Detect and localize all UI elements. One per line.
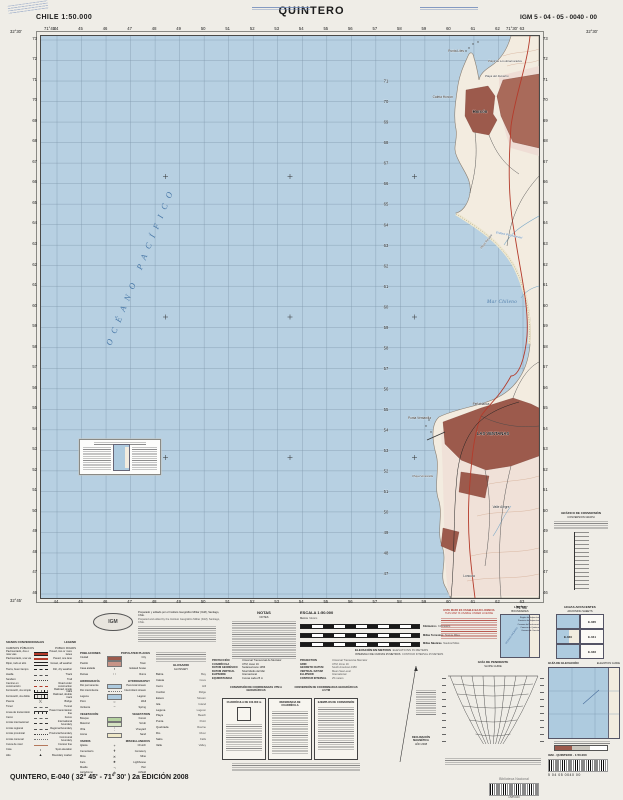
legend-item-en: Forest bbox=[122, 718, 146, 721]
blue-annotation-left bbox=[252, 7, 310, 11]
grid-label-northing-right: 73 bbox=[543, 37, 557, 41]
scale-meters-es: Metros bbox=[300, 617, 308, 620]
grid-label-northing-left: 47 bbox=[24, 570, 37, 574]
glossary-intro-microtext bbox=[156, 652, 206, 662]
adjoining-cell: E-046 bbox=[580, 644, 604, 659]
legend-symbol: ▲ bbox=[33, 754, 48, 758]
legend-item-en: Scrub bbox=[122, 723, 146, 726]
adjoining-cell: E-035 bbox=[580, 614, 604, 629]
slope-guide-notes bbox=[445, 758, 541, 765]
place-label: Punta Ventanilla bbox=[408, 416, 431, 420]
grid-label-northing-left: 68 bbox=[24, 139, 37, 143]
legend-symbol bbox=[33, 652, 48, 656]
legend-title-es: SIGNOS CONVENCIONALES bbox=[6, 640, 44, 644]
legend-item-en: Boundary marker bbox=[48, 755, 72, 758]
elevation-guide: GUÍA DE ELEVACIÓN ELEVATION GUIDE IGM - … bbox=[548, 662, 620, 777]
legend-symbol bbox=[33, 716, 48, 720]
grid-label-easting-bottom: 62 bbox=[492, 600, 502, 604]
depth-ruler bbox=[554, 745, 608, 751]
map-graphic: 7170696867666564636261605958575655545352… bbox=[41, 36, 539, 598]
svg-text:69: 69 bbox=[384, 120, 389, 125]
grid-label-easting-top: 46 bbox=[100, 27, 110, 31]
grid-label-northing-right: 72 bbox=[543, 57, 557, 61]
legend-symbol bbox=[33, 722, 48, 726]
limits-labels: Región de ValparaísoProvincia de Valpara… bbox=[513, 617, 539, 633]
svg-text:71: 71 bbox=[384, 79, 389, 84]
legend-item-es: Huella bbox=[6, 674, 33, 677]
grid-label-easting-top: 57 bbox=[370, 27, 380, 31]
warning-line2: THIS MAP IS USABLE UNDER LICENSE bbox=[440, 612, 498, 615]
grid-label-northing-right: 71 bbox=[543, 78, 557, 82]
inset-left-microtext bbox=[83, 447, 111, 471]
legend-item-en: Power transmission line bbox=[48, 710, 72, 715]
legend-item-en: Mine bbox=[122, 756, 146, 759]
svg-text:64: 64 bbox=[384, 222, 389, 227]
legend-item-es: Pueblo bbox=[80, 663, 107, 666]
svg-text:47: 47 bbox=[384, 571, 389, 576]
legend-item-es: Túnel bbox=[6, 706, 33, 709]
grid-label-easting-bottom: 55 bbox=[321, 600, 331, 604]
grid-label-northing-left: 52 bbox=[24, 468, 37, 472]
legend-item: Pavimentado, dos o más víasPaved, two or… bbox=[6, 651, 76, 656]
grid-label-easting-bottom: 51 bbox=[223, 600, 233, 604]
credits-block: Preparado y editado por el Instituto Geo… bbox=[138, 611, 220, 642]
adjoining-title-en: ADJOINING SHEETS bbox=[549, 610, 611, 613]
sheet-code: IGM 5 - 04 - 05 - 0040 - 00 bbox=[520, 14, 597, 21]
legend-item-es: Río permanente bbox=[80, 685, 107, 688]
declination-year: AÑO 2008 bbox=[404, 743, 438, 746]
grid-label-northing-right: 46 bbox=[543, 591, 557, 595]
grid-label-northing-right: 58 bbox=[543, 345, 557, 349]
legend-item: Hito▲Boundary marker bbox=[6, 753, 76, 758]
legend-item-en: Regional boundary bbox=[48, 728, 72, 731]
conversion-graph-notes bbox=[554, 521, 608, 529]
limits-title-en: BOUNDARIES bbox=[500, 610, 540, 613]
legend-symbol: )( bbox=[33, 700, 48, 704]
conversion-header1: CONVERSIÓN DE COORDENADAS UTM A GEOGRÁFI… bbox=[224, 686, 288, 693]
legend-item-es: Límite regional bbox=[6, 728, 33, 731]
grid-label-northing-right: 56 bbox=[543, 386, 557, 390]
legend-item-en: Spring bbox=[122, 707, 146, 710]
production-microtext bbox=[232, 763, 360, 772]
igm-barcode bbox=[548, 759, 608, 772]
legend-item-es: Cota bbox=[6, 749, 33, 752]
legend-symbol bbox=[107, 733, 122, 737]
conversion-boxes: CUADRÍCULA DE 100.000 mREFERENCIA DE CUA… bbox=[222, 698, 358, 760]
declination-microtext bbox=[416, 690, 436, 716]
warning-microtext bbox=[441, 618, 497, 640]
svg-text:67: 67 bbox=[384, 161, 389, 166]
grid-label-easting-bottom: 47 bbox=[125, 600, 135, 604]
legend-item-en: Dirt, dry weather bbox=[48, 669, 72, 672]
grid-label-northing-right: 50 bbox=[543, 509, 557, 513]
grid-label-northing-right: 70 bbox=[543, 98, 557, 102]
conversion-box-microtext bbox=[272, 711, 308, 755]
grid-label-northing-left: 70 bbox=[24, 98, 37, 102]
grid-label-northing-left: 63 bbox=[24, 242, 37, 246]
legend-item-es: Ferrocarril, vía doble bbox=[6, 696, 33, 699]
grid-label-easting-bottom: 56 bbox=[345, 600, 355, 604]
depth-ruler-labels bbox=[554, 741, 610, 745]
grid-label-northing-right: 66 bbox=[543, 180, 557, 184]
legend-title-en: LEGEND bbox=[64, 640, 76, 644]
legend-symbol: ¬ bbox=[107, 766, 122, 770]
legend-item-en: Lagoon bbox=[122, 696, 146, 699]
svg-text:50: 50 bbox=[384, 510, 389, 515]
legend-symbol bbox=[107, 690, 122, 694]
legend-symbol: ∷ bbox=[107, 673, 122, 677]
adjoining-block: HOJAS ADYACENTES ADJOINING SHEETS E-035E… bbox=[549, 606, 611, 659]
scale-bar bbox=[300, 633, 420, 638]
svg-text:59: 59 bbox=[384, 325, 389, 330]
grid-label-northing-left: 66 bbox=[24, 180, 37, 184]
place-label: Caleta Horcón bbox=[433, 95, 454, 99]
glossary-block: GLOSARIO GLOSSARY BahíaBayCaletaCoveCerr… bbox=[156, 652, 206, 750]
legend-item-es: Ciudad bbox=[80, 657, 107, 660]
place-label: Valle Alegre bbox=[493, 505, 510, 509]
legend-symbol: ✕ bbox=[107, 756, 122, 760]
grid-label-easting-top: 48 bbox=[149, 27, 159, 31]
svg-text:48: 48 bbox=[384, 551, 389, 556]
igm-logo-text: IGM bbox=[108, 619, 117, 625]
notes-microtext bbox=[232, 621, 296, 659]
place-label: Playa del Durazno bbox=[485, 74, 509, 78]
legend-item-en: City bbox=[122, 657, 146, 660]
legend-symbol bbox=[107, 657, 122, 661]
legend-item-es: Bosque bbox=[80, 718, 107, 721]
svg-text:61: 61 bbox=[384, 284, 389, 289]
grid-label-easting-bottom: 57 bbox=[370, 600, 380, 604]
grid-label-northing-right: 64 bbox=[543, 221, 557, 225]
grid-label-northing-left: 62 bbox=[24, 263, 37, 267]
legend-item-es: Río intermitente bbox=[80, 690, 107, 693]
legend-item-en: Vineyard bbox=[122, 729, 146, 732]
svg-text:56: 56 bbox=[384, 386, 389, 391]
grid-label-easting-bottom: 53 bbox=[272, 600, 282, 604]
grid-label-easting-top: 53 bbox=[272, 27, 282, 31]
adjoining-row: E-035 bbox=[556, 614, 604, 629]
grid-label-northing-right: 60 bbox=[543, 304, 557, 308]
grid-label-easting-top: 63 bbox=[517, 27, 527, 31]
igm-barcode-label: IGM - QUINTERO - 1:50.000 bbox=[548, 754, 620, 758]
corner-coord-ne_lon: 71°30' bbox=[506, 27, 518, 31]
conversion-box-microtext bbox=[318, 707, 354, 751]
grid-label-easting-top: 61 bbox=[468, 27, 478, 31]
legend-symbol: ★ bbox=[107, 761, 122, 765]
notes-block: NOTAS NOTES bbox=[232, 611, 296, 659]
svg-text:54: 54 bbox=[384, 427, 389, 432]
legend-item-en: Communal boundary bbox=[48, 737, 72, 742]
elevation-guide-title-en: ELEVATION GUIDE bbox=[597, 662, 620, 666]
conversion-graph: GRÁFICO DE CONVERSIÓN CONVERSION GRAPH bbox=[545, 512, 617, 598]
projection-table: ProyecciónUniversal Transversal de Merca… bbox=[212, 660, 392, 682]
grid-label-northing-right: 49 bbox=[543, 529, 557, 533]
adjoining-row: E-046 bbox=[556, 644, 604, 659]
grid-label-easting-bottom: 61 bbox=[468, 600, 478, 604]
grid-label-easting-bottom: 60 bbox=[443, 600, 453, 604]
legend-symbol: • bbox=[33, 749, 48, 753]
glossary-rows: BahíaBayCaletaCoveCerroHillCordónRidgeEs… bbox=[156, 673, 206, 750]
legend-symbol bbox=[33, 711, 48, 715]
grid-label-northing-right: 51 bbox=[543, 488, 557, 492]
conversion-box-title: EJEMPLOS DE CONVERSIÓN bbox=[317, 701, 355, 704]
svg-text:51: 51 bbox=[384, 489, 389, 494]
limits-block: LÍMITES BOUNDARIES OCÉANO PACÍFICO Regió… bbox=[500, 606, 540, 658]
legend-item-en: Cemetery bbox=[122, 751, 146, 754]
legend-symbol: + bbox=[107, 745, 122, 749]
grid-square-diagram bbox=[237, 707, 251, 721]
grid-label-easting-top: 49 bbox=[174, 27, 184, 31]
svg-text:60: 60 bbox=[384, 304, 389, 309]
legend-symbol bbox=[107, 717, 122, 721]
legend-symbol bbox=[33, 689, 48, 693]
legend-item-es: Muelle bbox=[80, 767, 107, 770]
legend-item-en: Paved, two or more lanes bbox=[48, 651, 72, 656]
glossary-row: ValleValley bbox=[156, 744, 206, 750]
grid-label-easting-bottom: 58 bbox=[394, 600, 404, 604]
svg-text:49: 49 bbox=[384, 530, 389, 535]
grid-label-northing-left: 56 bbox=[24, 386, 37, 390]
legend-col2: POBLACIONESPOPULATED PLACESCiudadCityPue… bbox=[80, 650, 150, 776]
legend-item-es: Pozo bbox=[80, 701, 107, 704]
legend-item-es: Línea de transmisión bbox=[6, 712, 33, 715]
legend-item-en: Pier bbox=[122, 767, 146, 770]
legend-symbol bbox=[33, 662, 48, 666]
notes-title-en: NOTES bbox=[232, 616, 296, 619]
grid-label-easting-bottom: 52 bbox=[247, 600, 257, 604]
grid-label-northing-right: 57 bbox=[543, 365, 557, 369]
declination-title: DECLINACIÓN MAGNÉTICA bbox=[404, 736, 438, 743]
legend-symbol bbox=[33, 695, 48, 699]
legend-symbol bbox=[33, 657, 48, 661]
svg-text:52: 52 bbox=[384, 468, 389, 473]
grid-label-northing-right: 52 bbox=[543, 468, 557, 472]
grid-label-northing-left: 46 bbox=[24, 591, 37, 595]
igm-barcode-digits: 5 04 05 0040 00 bbox=[548, 773, 620, 778]
legend-symbol bbox=[107, 662, 122, 666]
elevation-line1-es: ELEVACIÓN EN METROS bbox=[355, 648, 391, 652]
grid-label-northing-left: 58 bbox=[24, 345, 37, 349]
grid-label-northing-left: 50 bbox=[24, 509, 37, 513]
corner-coord-nw_lat: 32°30' bbox=[10, 30, 22, 34]
grid-label-northing-right: 53 bbox=[543, 447, 557, 451]
grid-label-northing-right: 54 bbox=[543, 427, 557, 431]
corner-coord-se_lon: 71°30' bbox=[516, 606, 528, 610]
grid-label-northing-left: 73 bbox=[24, 37, 37, 41]
legend-item-es: Curva de nivel bbox=[6, 744, 33, 747]
glossary-title-en: GLOSSARY bbox=[156, 668, 206, 671]
scale-meters-en: Meters bbox=[309, 617, 317, 620]
legend-item-es: Pavimentado, una vía bbox=[6, 658, 33, 661]
elevation-line2-en: CONTOUR INTERVAL 25 METERS bbox=[402, 653, 443, 656]
legend-item-es: Camino en construcción bbox=[6, 683, 33, 688]
svg-text:53: 53 bbox=[384, 448, 389, 453]
legend-item-es: Ruinas bbox=[80, 674, 107, 677]
adjoining-cell: E-040 bbox=[556, 629, 580, 644]
grid-label-northing-right: 69 bbox=[543, 119, 557, 123]
limits-map: OCÉANO PACÍFICO Región de ValparaísoProv… bbox=[500, 614, 540, 658]
igm-logo: IGM bbox=[93, 613, 133, 631]
legend-item-es: Arena bbox=[80, 734, 107, 737]
grid-label-easting-top: 51 bbox=[223, 27, 233, 31]
legend-symbol bbox=[33, 668, 48, 672]
credit-line-en: Prepared and edited by the Instituto Geo… bbox=[138, 618, 220, 625]
grid-label-northing-left: 72 bbox=[24, 57, 37, 61]
legend-symbol bbox=[33, 733, 48, 737]
svg-text:68: 68 bbox=[384, 140, 389, 145]
scale-bar bbox=[300, 624, 420, 629]
credits-microtext bbox=[138, 626, 216, 642]
library-stamp-name: Biblioteca Nacional bbox=[487, 777, 541, 782]
elevation-note: ELEVACIÓN EN METROS ELEVATIONS IN METERS… bbox=[355, 649, 475, 656]
legend-item-en: Bridge bbox=[48, 701, 72, 704]
grid-label-easting-top: 56 bbox=[345, 27, 355, 31]
slope-guide: GUÍA DE PENDIENTE SLOPE GUIDE bbox=[440, 661, 546, 765]
scale-bar-label: Millas Náuticas Nautical Miles bbox=[423, 642, 459, 645]
grid-label-northing-left: 59 bbox=[24, 324, 37, 328]
grid-label-easting-bottom: 59 bbox=[419, 600, 429, 604]
place-label: Punta Liles bbox=[448, 49, 464, 53]
legend-item-es: Laguna bbox=[80, 696, 107, 699]
adjoining-cell bbox=[556, 614, 580, 629]
svg-text:66: 66 bbox=[384, 181, 389, 186]
grid-label-northing-left: 55 bbox=[24, 406, 37, 410]
grid-label-easting-top: 55 bbox=[321, 27, 331, 31]
legend-symbol: ~ bbox=[107, 706, 122, 710]
legend-item-en: Paved, one lane bbox=[48, 658, 72, 661]
grid-label-northing-right: 62 bbox=[543, 263, 557, 267]
grid-label-northing-left: 51 bbox=[24, 488, 37, 492]
legend-item-es: Pavimentado, dos o más vías bbox=[6, 651, 33, 656]
elevation-line2-es: INTERVALO DE CURVAS 25 METROS bbox=[355, 653, 401, 656]
grid-label-northing-right: 55 bbox=[543, 406, 557, 410]
grid-label-easting-bottom: 44 bbox=[51, 600, 61, 604]
legend-item-en: Isolated house bbox=[122, 668, 146, 671]
corner-coord-ne_lat: 32°30' bbox=[586, 30, 598, 34]
place-label: LAS VENTANAS bbox=[477, 431, 509, 436]
legend-symbol bbox=[107, 684, 122, 688]
grid-label-easting-top: 62 bbox=[492, 27, 502, 31]
legend-items: Pavimentado, dos o más víasPaved, two or… bbox=[6, 651, 76, 759]
grid-label-northing-left: 65 bbox=[24, 201, 37, 205]
legend-item-es: Tierra, buen tiempo bbox=[6, 669, 33, 672]
conversion-box-microtext bbox=[226, 724, 262, 752]
svg-text:57: 57 bbox=[384, 366, 389, 371]
conversion-box: REFERENCIA DE CUADRÍCULA bbox=[268, 698, 312, 760]
legend-item-es: Casa aislada bbox=[80, 668, 107, 671]
legend-item-es: Iglesia bbox=[80, 745, 107, 748]
inset-mini-map bbox=[113, 444, 130, 471]
legend-item-es: Límite internacional bbox=[6, 722, 33, 725]
grid-label-northing-left: 64 bbox=[24, 221, 37, 225]
legend-item-en: Intermittent stream bbox=[122, 690, 146, 693]
scale-bar-row: Millas Náuticas Nautical Miles bbox=[300, 642, 475, 647]
legend-item-en: Sand bbox=[122, 734, 146, 737]
legend-item-en: Contour line bbox=[48, 744, 72, 747]
conversion-header2: CONVERSIÓN DE COORDENADAS GEOGRÁFICAS A … bbox=[294, 686, 358, 693]
grid-label-easting-top: 60 bbox=[443, 27, 453, 31]
grid-label-easting-top: 52 bbox=[247, 27, 257, 31]
legend-symbol: ⋮ bbox=[107, 728, 122, 732]
legend-symbol bbox=[33, 673, 48, 677]
svg-text:55: 55 bbox=[384, 407, 389, 412]
scale-bar bbox=[300, 642, 420, 647]
legend-item-es: Faro bbox=[80, 762, 107, 765]
grid-label-northing-left: 54 bbox=[24, 427, 37, 431]
credit-line-es: Preparado y editado por el Instituto Geo… bbox=[138, 611, 220, 618]
legend-item-en: Town bbox=[122, 663, 146, 666]
legend-symbol bbox=[107, 695, 122, 699]
projection-row: EquidistanciaCurvas cada 25 mContour Int… bbox=[212, 678, 392, 682]
grid-label-easting-bottom: 45 bbox=[76, 600, 86, 604]
grid-label-northing-left: 61 bbox=[24, 283, 37, 287]
svg-text:58: 58 bbox=[384, 345, 389, 350]
elevation-line1-en: ELEVATIONS IN METERS bbox=[393, 648, 429, 652]
legend-symbol: ▪ bbox=[107, 667, 122, 671]
svg-text:65: 65 bbox=[384, 202, 389, 207]
grid-label-easting-top: 47 bbox=[125, 27, 135, 31]
grid-label-northing-right: 48 bbox=[543, 550, 557, 554]
legend-item-en: Railroad, double track bbox=[48, 694, 72, 699]
legend-item-es: Viña bbox=[80, 729, 107, 732]
legend-symbol bbox=[33, 706, 48, 710]
limits-entry: Comuna de Concón bbox=[513, 630, 539, 633]
grid-label-easting-top: 50 bbox=[198, 27, 208, 31]
grid-label-northing-left: 71 bbox=[24, 78, 37, 82]
legend-symbol bbox=[33, 743, 48, 747]
legend-item-es: Puente bbox=[6, 701, 33, 704]
footer-edition: QUINTERO, E-040 ( 32° 45' - 71° 30' ) 2a… bbox=[10, 774, 189, 781]
legend-item-es: Límite comunal bbox=[6, 739, 33, 742]
svg-text:62: 62 bbox=[384, 263, 389, 268]
adjoining-cell: E-041 bbox=[580, 629, 604, 644]
place-label: Playa Ventanilla bbox=[412, 474, 433, 478]
legend-item-es: Ferrocarril, vía simple bbox=[6, 690, 33, 693]
grid-label-northing-left: 67 bbox=[24, 160, 37, 164]
grid-label-easting-top: 54 bbox=[296, 27, 306, 31]
map-canvas: 7170696867666564636261605958575655545352… bbox=[40, 35, 540, 599]
grid-label-easting-bottom: 54 bbox=[296, 600, 306, 604]
legend-item-es: Cerco bbox=[6, 717, 33, 720]
grid-label-northing-right: 59 bbox=[543, 324, 557, 328]
place-label: Peñablanca bbox=[473, 402, 490, 406]
elevation-guide-title-es: GUÍA DE ELEVACIÓN bbox=[548, 662, 579, 666]
legend-symbol: ○ bbox=[107, 700, 122, 704]
grid-label-easting-bottom: 48 bbox=[149, 600, 159, 604]
conversion-box: EJEMPLOS DE CONVERSIÓN bbox=[314, 698, 358, 760]
legend-item-en: Lighthouse bbox=[122, 762, 146, 765]
marginal-note-inset bbox=[79, 439, 161, 475]
blue-annotation-right bbox=[420, 7, 478, 11]
legend-item-en: Church bbox=[122, 745, 146, 748]
legend-item-en: Ruins bbox=[122, 674, 146, 677]
corner-coord-nw_lon: 71°45' bbox=[44, 27, 56, 31]
grid-label-northing-left: 53 bbox=[24, 447, 37, 451]
conversion-graph-ruler bbox=[574, 532, 589, 590]
legend-symbol bbox=[107, 723, 122, 727]
grid-label-northing-right: 47 bbox=[543, 570, 557, 574]
legend-item-en: Perennial stream bbox=[122, 685, 146, 688]
grid-label-northing-right: 68 bbox=[543, 139, 557, 143]
elevation-guide-map bbox=[548, 667, 620, 739]
legend-symbol bbox=[33, 684, 48, 688]
grid-label-northing-left: 57 bbox=[24, 365, 37, 369]
grid-label-easting-top: 59 bbox=[419, 27, 429, 31]
grid-label-northing-right: 67 bbox=[543, 160, 557, 164]
legend-item-es: Mina bbox=[80, 756, 107, 759]
legend-groups: POBLACIONESPOPULATED PLACESCiudadCityPue… bbox=[80, 650, 150, 776]
legend-item-en: International boundary bbox=[48, 721, 72, 726]
